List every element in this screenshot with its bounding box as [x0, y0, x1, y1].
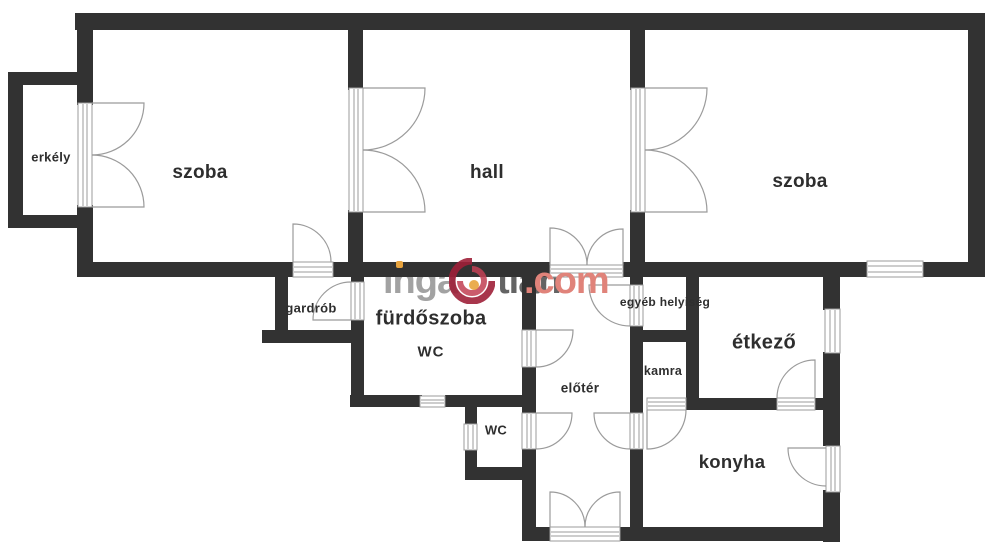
room-label-szoba-left: szoba [172, 162, 227, 184]
watermark-orange-dot [396, 261, 403, 268]
watermark-text-com: .com [524, 262, 609, 300]
room-label-gardrob: gardrób [285, 301, 336, 316]
room-label-furdoszoba: fürdőszoba [376, 308, 487, 331]
floor-plan: inga tlan [0, 0, 1000, 558]
ingatlan-logo-icon [449, 258, 495, 304]
room-label-furdoszoba-wc: WC [418, 344, 445, 361]
room-label-szoba-right: szoba [772, 171, 827, 193]
room-label-kamra: kamra [644, 364, 682, 378]
room-label-erkely: erkély [31, 150, 70, 165]
room-label-etkezo: étkező [732, 332, 796, 355]
room-label-konyha: konyha [699, 451, 766, 473]
room-label-eloter: előtér [561, 381, 600, 396]
floor-plan-drawing [0, 0, 1000, 558]
room-label-wc: WC [485, 423, 507, 438]
room-label-egyeb-helyiseg: egyéb helyiség [620, 295, 710, 309]
room-label-hall: hall [470, 162, 504, 184]
